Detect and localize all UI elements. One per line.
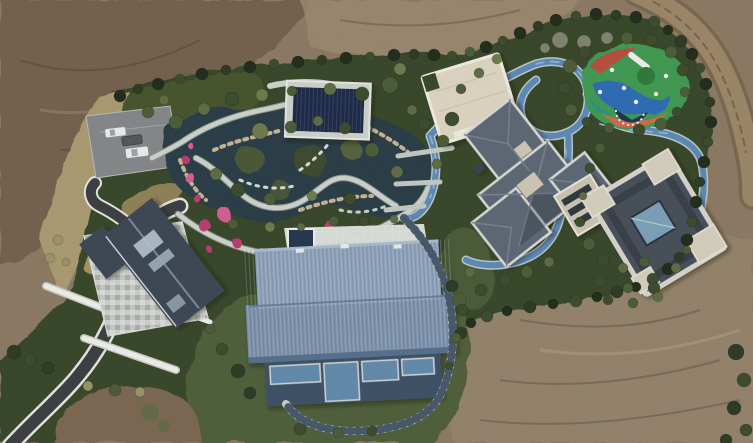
aerial-photo-canvas	[0, 0, 753, 443]
photo-grain-overlay	[0, 0, 753, 443]
aerial-photo	[0, 0, 753, 443]
